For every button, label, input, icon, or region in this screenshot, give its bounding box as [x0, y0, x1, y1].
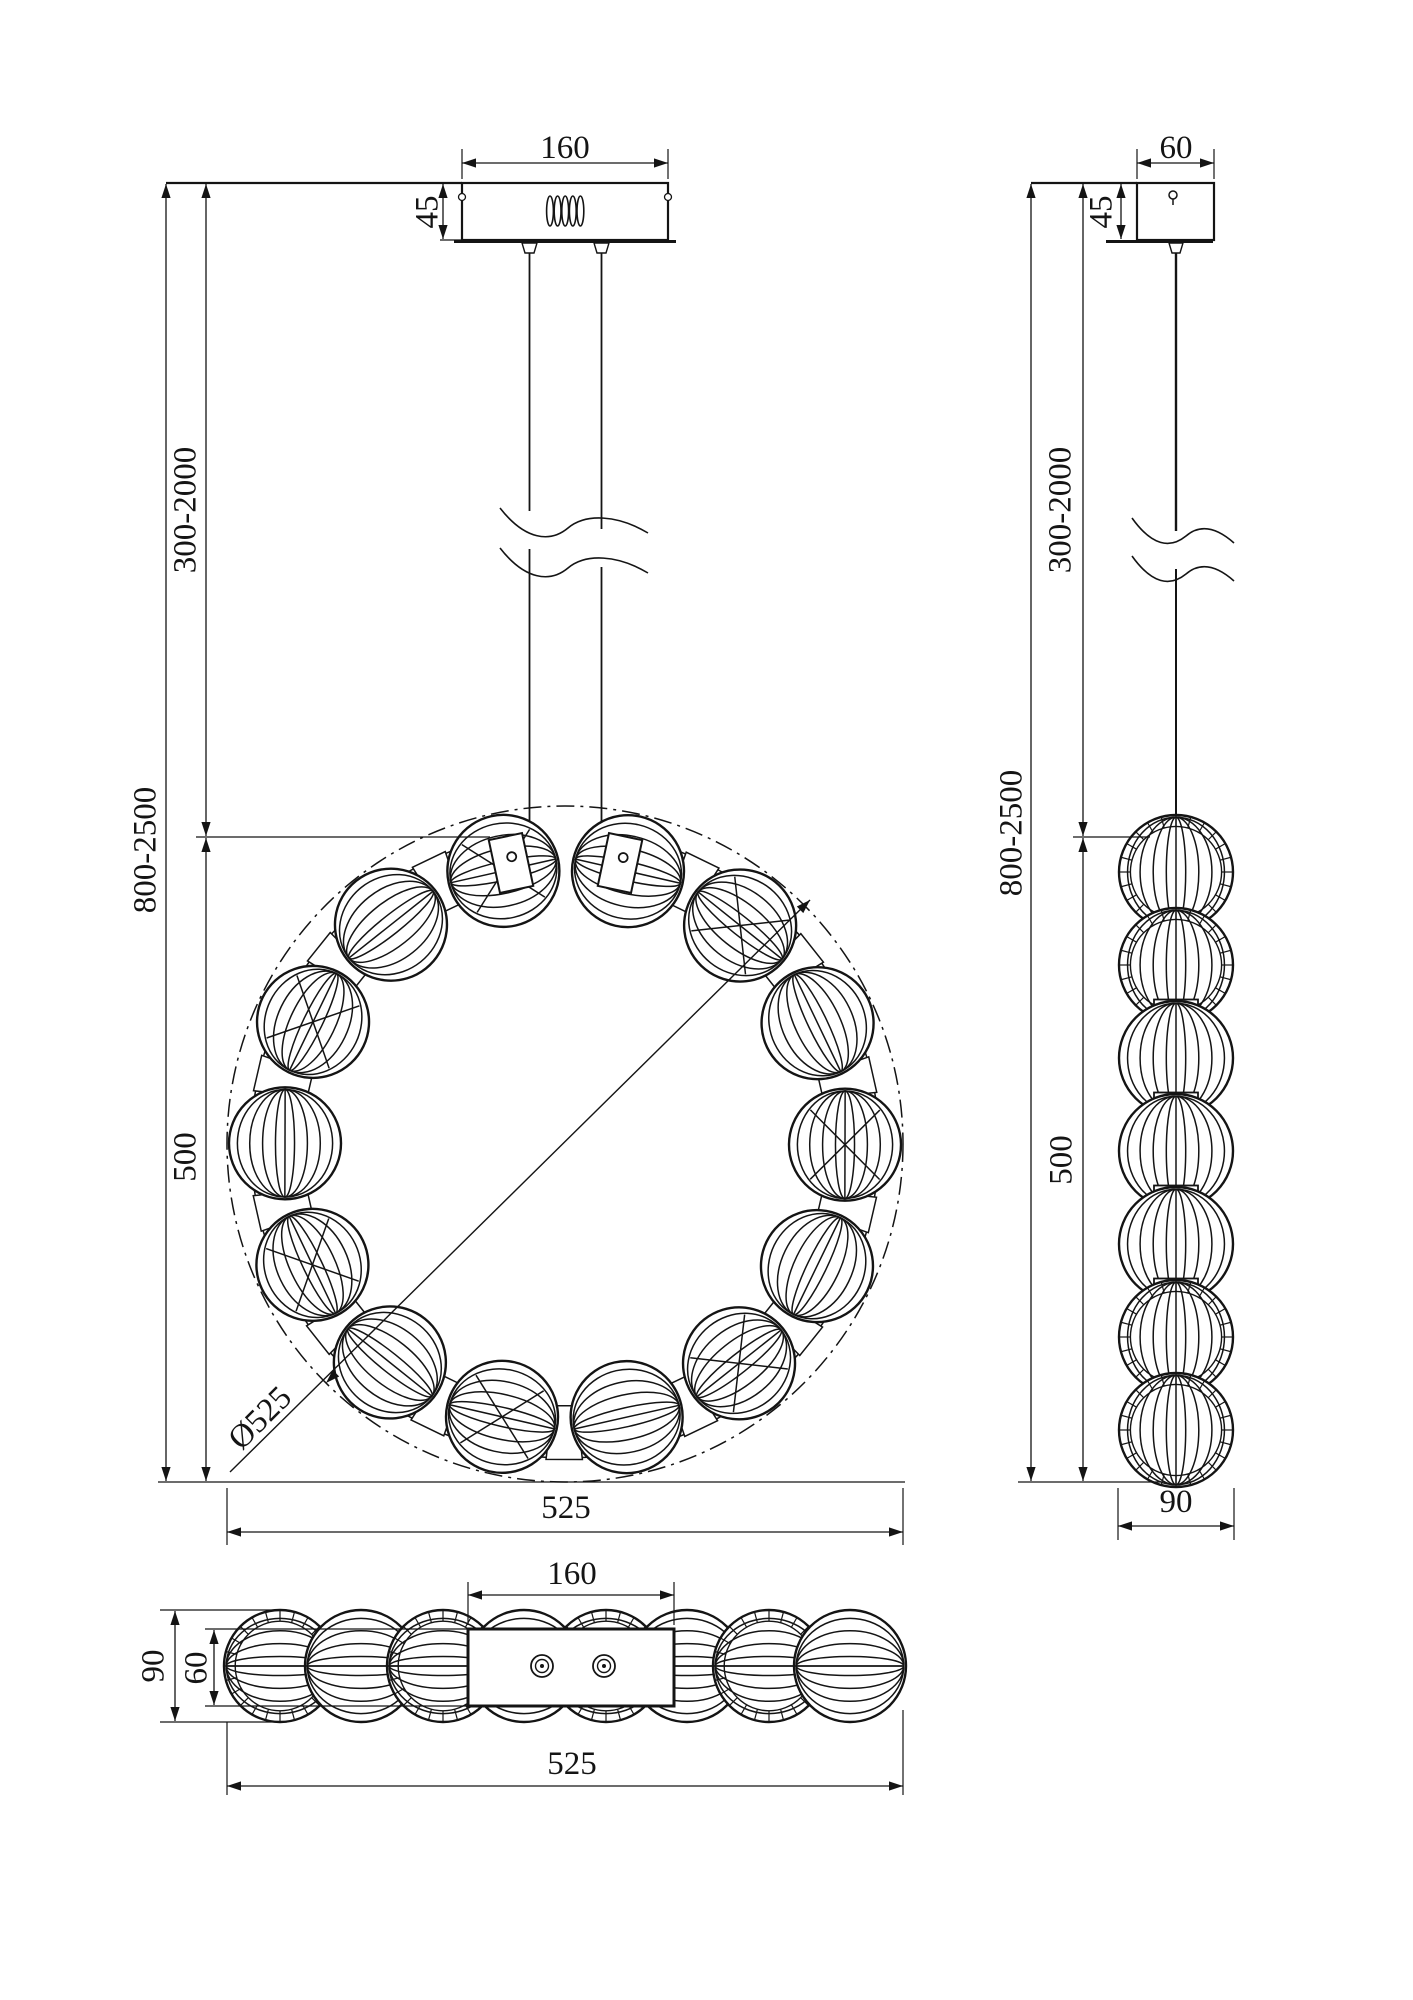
side-canopy-height-label: 45: [1084, 196, 1120, 229]
break-wave: [1132, 556, 1234, 581]
dimension-arrowhead: [1220, 1521, 1234, 1530]
mounting-plate: [468, 1629, 674, 1706]
screw-center: [602, 1664, 606, 1668]
front-view: [158, 149, 905, 1545]
dimension-arrowhead: [161, 1467, 170, 1481]
front-canopy-width-label: 160: [540, 130, 590, 166]
dimension-arrowhead: [227, 1781, 241, 1790]
tab-hole: [618, 852, 629, 863]
technical-drawing-page: 160 45 300-2000 800-2500 500 525 Ø525 60…: [0, 0, 1413, 2000]
pendant-lamp-dimension-drawing: 160 45 300-2000 800-2500 500 525 Ø525 60…: [0, 0, 1413, 2000]
dimension-arrowhead: [209, 1630, 218, 1644]
break-wave: [500, 508, 648, 537]
dimension-arrowhead: [201, 184, 210, 198]
canopy-screw-bump: [665, 194, 672, 201]
dimension-arrowhead: [468, 1590, 482, 1599]
side-overall-range-label: 800-2500: [994, 770, 1030, 897]
side-body-height-label: 500: [1044, 1135, 1080, 1185]
dimension-arrowhead: [161, 184, 170, 198]
wire-stub: [522, 243, 537, 253]
dimension-arrowhead: [462, 158, 476, 167]
dimension-arrowhead: [227, 1527, 241, 1536]
dimension-arrowhead: [654, 158, 668, 167]
dimension-arrowhead: [1026, 184, 1035, 198]
dimension-arrowhead: [1118, 1521, 1132, 1530]
dimension-arrowhead: [1078, 1467, 1087, 1481]
dimension-arrowhead: [201, 838, 210, 852]
dimension-arrowhead: [1200, 158, 1214, 167]
tab-hole: [506, 851, 517, 862]
canopy-screw-bump: [459, 194, 466, 201]
dimension-arrowhead: [1137, 158, 1151, 167]
front-overall-range-label: 800-2500: [128, 787, 164, 914]
dimension-arrowhead: [1026, 1467, 1035, 1481]
break-wave: [500, 548, 648, 577]
dimension-arrowhead: [889, 1781, 903, 1790]
break-wave: [1132, 518, 1234, 543]
dimension-arrowhead: [1078, 838, 1087, 852]
front-body-height-label: 500: [168, 1132, 204, 1182]
wire-stub: [1169, 243, 1183, 253]
dimension-arrowhead: [660, 1590, 674, 1599]
dimension-arrowhead: [1078, 822, 1087, 836]
dimension-arrowhead: [170, 1707, 179, 1721]
dimension-arrowhead: [170, 1611, 179, 1625]
side-suspension-range-label: 300-2000: [1043, 447, 1079, 574]
dimension-arrowhead: [201, 1467, 210, 1481]
dimension-arrowhead: [209, 1691, 218, 1705]
front-overall-width-label: 525: [541, 1490, 591, 1526]
canopy-front: [462, 183, 668, 240]
front-canopy-height-label: 45: [410, 196, 446, 229]
side-body-width-label: 90: [1160, 1484, 1193, 1520]
bottom-view: [160, 1582, 906, 1795]
bottom-body-depth-label: 90: [136, 1650, 172, 1683]
bottom-overall-width-label: 525: [547, 1746, 597, 1782]
side-canopy-width-label: 60: [1160, 130, 1193, 166]
front-suspension-range-label: 300-2000: [168, 447, 204, 574]
bottom-plate-width-label: 160: [547, 1556, 597, 1592]
front-ring-diameter-label: Ø525: [222, 1380, 299, 1457]
glass-bead: [1119, 1373, 1233, 1487]
bottom-plate-depth-label: 60: [179, 1652, 215, 1685]
screw-center: [540, 1664, 544, 1668]
dimension-arrowhead: [889, 1527, 903, 1536]
glass-bead: [789, 1089, 901, 1201]
wire-stub: [594, 243, 609, 253]
dimension-arrowhead: [201, 822, 210, 836]
glass-bead: [229, 1087, 341, 1199]
side-view: [1018, 149, 1234, 1540]
